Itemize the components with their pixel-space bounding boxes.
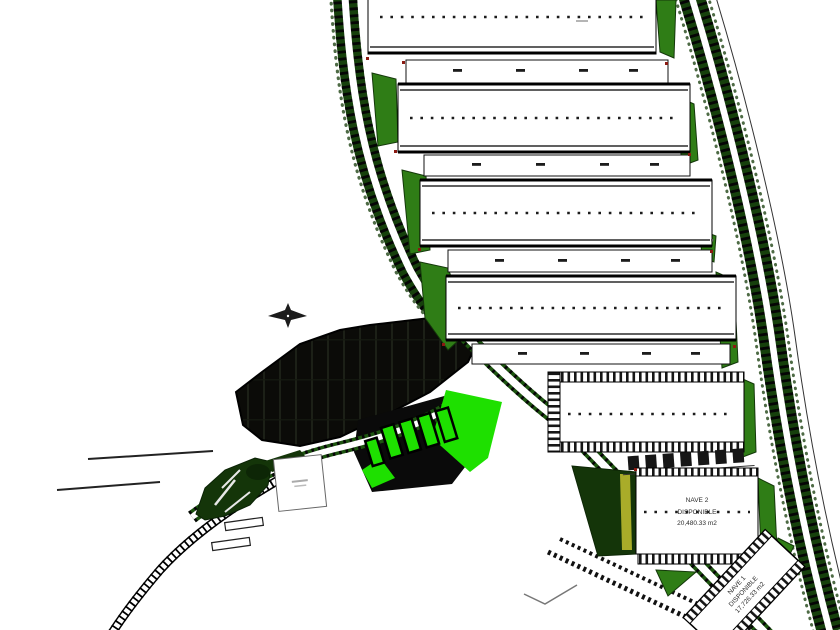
warehouse-1 xyxy=(368,0,656,54)
building-nave-2: NAVE 2 DISPONIBLE 20,480.33 m2 xyxy=(636,468,758,564)
loading-dock-hatch xyxy=(548,372,560,452)
warehouse-5 xyxy=(548,372,744,452)
survey-mark xyxy=(711,239,714,242)
warehouse-2 xyxy=(398,84,690,152)
truck-court xyxy=(406,60,668,83)
dimension-mark xyxy=(576,20,588,22)
nave2-area-label: 20,480.33 m2 xyxy=(677,520,717,527)
loading-dock-hatch xyxy=(548,442,744,452)
site-plan-drawing: NAVE 2 DISPONIBLE 20,480.33 m2 NAVE 1 DI… xyxy=(0,0,840,630)
nave2-name-label: NAVE 2 xyxy=(686,497,709,504)
yellow-strip xyxy=(620,474,632,550)
warehouse-3 xyxy=(420,180,712,246)
annotation-box xyxy=(273,455,326,512)
warehouse-4 xyxy=(446,276,736,340)
green-patch xyxy=(656,0,676,58)
west-road-line xyxy=(88,451,213,459)
loading-dock-hatch xyxy=(548,372,744,382)
green-patch xyxy=(372,73,398,146)
west-road-line xyxy=(57,482,160,490)
nave2-status-label: DISPONIBLE xyxy=(677,509,717,516)
north-arrow-icon xyxy=(268,303,307,328)
site-plan-canvas: NAVE 2 DISPONIBLE 20,480.33 m2 NAVE 1 DI… xyxy=(0,0,840,630)
truck-court xyxy=(448,250,712,272)
south-road-stub xyxy=(524,585,577,604)
truck-court xyxy=(472,344,730,364)
truck-court xyxy=(424,155,690,176)
